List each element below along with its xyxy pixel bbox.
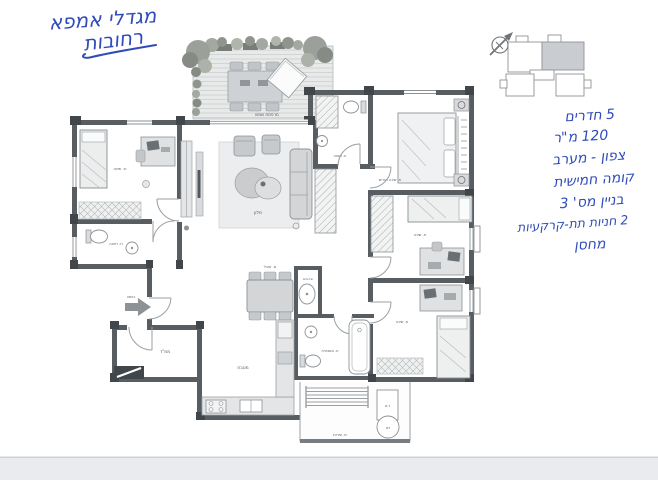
boiler-label: דש: [386, 426, 390, 430]
key-plan-block: [506, 74, 534, 96]
bath-master: [316, 96, 366, 147]
sink-icon: [299, 284, 315, 304]
balcony-edge: [300, 439, 410, 443]
note-floor: קומה חמישית: [553, 169, 636, 191]
master-bedroom: [398, 99, 469, 186]
bath-left-label: ח. רחצה: [109, 242, 123, 246]
terrace-label: מרפסת שמש: [255, 112, 279, 117]
bedroom-left: [79, 130, 175, 219]
service-balcony-label: מ. שירות: [333, 433, 347, 437]
toilet-icon: [344, 101, 367, 113]
double-bed-icon: [398, 113, 467, 183]
outdoor-dining-table-icon: [228, 62, 282, 111]
window-bedroom-left-top: [127, 120, 152, 126]
single-bed-icon: [80, 130, 107, 188]
fridge-icon: [278, 322, 292, 338]
kitchen-label: מטבח: [237, 366, 248, 371]
wc-label: שירותים: [303, 277, 313, 281]
bedroom-bottom-label: ח. שינה: [396, 319, 409, 324]
bedroom-mid-label: ח. שינה: [414, 232, 427, 237]
window-bath-left-side: [72, 237, 78, 257]
service-balcony: [300, 382, 410, 443]
stool-icon: [143, 181, 150, 188]
safe-room-blast-window-icon: [114, 366, 144, 379]
dining-table-icon: [247, 272, 293, 320]
kitchen-sink-icon: [240, 400, 262, 412]
sink-icon: [305, 326, 317, 338]
sink-icon: [317, 136, 328, 147]
single-bed-icon: [437, 316, 470, 378]
cabinet-label: ד.ש: [385, 404, 390, 408]
stove-icon: [206, 400, 226, 413]
armchair-icon: [234, 136, 255, 156]
window-bedroom-bottom-right: [468, 288, 480, 314]
wardrobe-hatched-icon: [371, 196, 393, 252]
bedroom-left-label: ח. שינה: [113, 166, 126, 171]
desk-icon: [420, 242, 464, 275]
wc-room: [299, 284, 315, 304]
closet-hatched-icon: [315, 169, 336, 233]
bedroom-mid-door: [370, 257, 391, 278]
toilet-icon: [86, 230, 108, 243]
nightstand-icon: [454, 174, 469, 186]
note-rooms: 5 חדרים: [564, 107, 615, 126]
floor-plan-canvas: מרפסת שמש סלון פ. אוכל מטבח ח. שינה הורי…: [0, 0, 658, 480]
living-label: סלון: [254, 211, 262, 216]
key-plan-block: [508, 42, 542, 72]
rug: [79, 202, 141, 219]
window-master-top: [404, 89, 436, 96]
bath-master-label: ח. רחצה: [334, 154, 347, 158]
single-bed-icon: [408, 196, 472, 222]
master-label: ח. שינה הורים: [379, 177, 402, 182]
bath-left-door: [153, 221, 174, 242]
sofa-icon: [290, 149, 312, 219]
sink-icon: [126, 242, 138, 254]
scanned-floor-plan-page: מרפסת שמש סלון פ. אוכל מטבח ח. שינה הורי…: [0, 0, 658, 480]
desk-icon: [136, 137, 175, 166]
bath-main-label: ח. אמבטיה: [321, 349, 339, 353]
oven-icon: [278, 352, 292, 364]
note-building: בניין מס' 3: [559, 192, 624, 212]
scan-edge-strip: [0, 457, 658, 480]
bedroom-left-door: [157, 199, 179, 221]
armchair-icon: [262, 135, 280, 154]
nightstand-icon: [454, 99, 469, 111]
key-plan-highlighted-unit: [542, 42, 584, 70]
note-parking: 2 חניות תת-קרקעיות: [517, 212, 629, 235]
dining-area: [247, 272, 293, 320]
bathtub-icon: [349, 320, 370, 374]
note-storage: מחסן: [574, 236, 607, 254]
bedroom-bottom-door: [370, 302, 391, 323]
entry-door: [149, 298, 171, 319]
rug: [377, 358, 423, 374]
window-bedroom-mid-right: [468, 226, 480, 252]
note-orientation: צפון - מערב: [552, 147, 627, 168]
key-plan-balcony: [500, 80, 507, 88]
hall-wardrobe-icon: [181, 141, 192, 231]
dining-label: פ. אוכל: [264, 264, 277, 269]
shower-icon: [316, 96, 338, 128]
window-bedroom-left-side: [72, 157, 78, 187]
bath-main: [300, 320, 370, 374]
tv-icon: [198, 170, 201, 198]
key-plan: [490, 32, 591, 96]
key-plan-balcony: [584, 80, 591, 88]
desk-icon: [420, 285, 462, 311]
tree-left-icon: [182, 40, 212, 77]
safe-room-door: [129, 327, 152, 350]
toilet-icon: [300, 355, 321, 367]
entrance-label: כניסה: [127, 295, 136, 299]
bedroom-bottom: [377, 285, 470, 378]
entry-arrow-icon: [125, 298, 151, 316]
terrace-sliding-door: [210, 120, 308, 126]
key-plan-block: [556, 74, 584, 96]
safe-room-label: ממ"ד: [160, 349, 170, 355]
note-area: 120 מ"ר: [553, 128, 609, 147]
